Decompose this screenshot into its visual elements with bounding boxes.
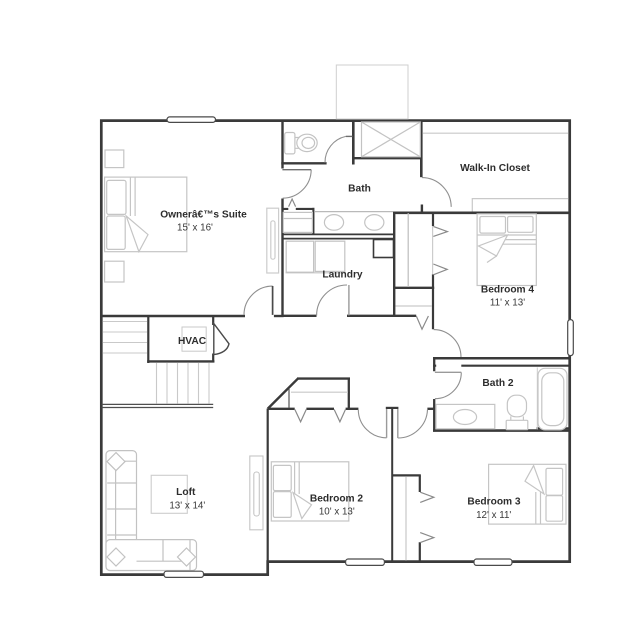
- svg-text:Bath 2: Bath 2: [482, 378, 513, 389]
- svg-text:HVAC: HVAC: [178, 336, 207, 347]
- svg-text:Bath: Bath: [348, 184, 371, 195]
- svg-text:Loft: Loft: [176, 487, 196, 498]
- svg-text:Bedroom 4: Bedroom 4: [481, 285, 535, 296]
- svg-text:Bedroom 2: Bedroom 2: [310, 493, 364, 504]
- svg-text:Walk-In Closet: Walk-In Closet: [460, 163, 530, 174]
- svg-text:11' x 13': 11' x 13': [490, 298, 525, 309]
- svg-text:13' x 14': 13' x 14': [169, 501, 205, 512]
- svg-text:10' x 13': 10' x 13': [319, 507, 355, 518]
- svg-text:15' x 16': 15' x 16': [177, 223, 213, 234]
- svg-text:Laundry: Laundry: [322, 270, 363, 281]
- svg-text:Bedroom 3: Bedroom 3: [467, 497, 521, 508]
- svg-text:12' x 11': 12' x 11': [476, 510, 511, 521]
- svg-text:Ownerâ€™s Suite: Ownerâ€™s Suite: [160, 210, 247, 221]
